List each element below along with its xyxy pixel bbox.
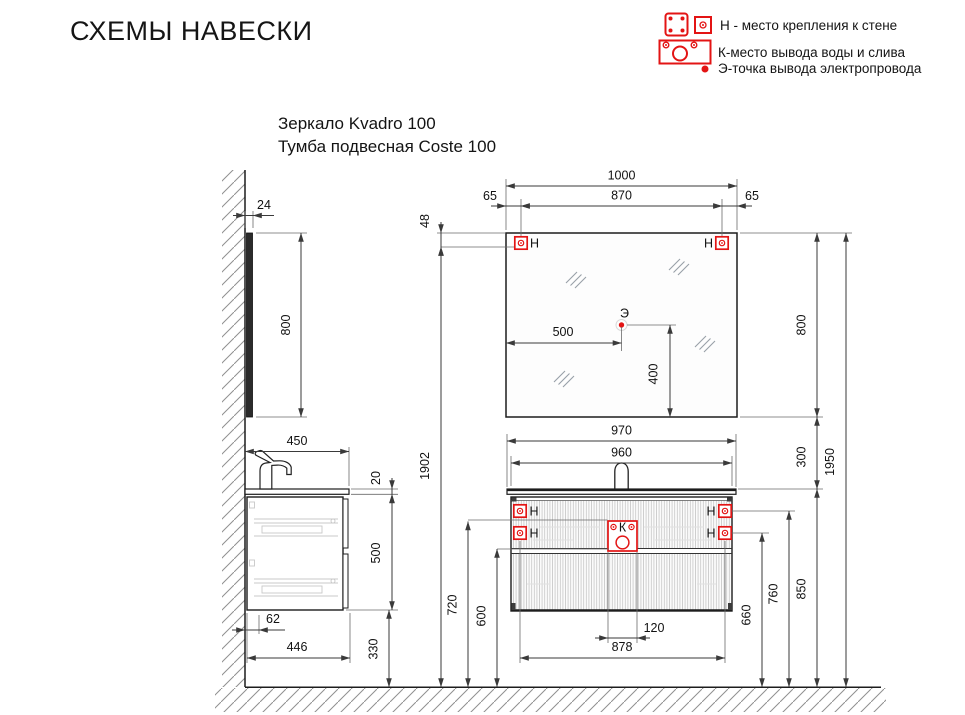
legend-item-wall-mount: Н - место крепления к стене [660,12,897,38]
central-dims: 48 1902 720 600 [418,214,497,687]
vanity-mount-left-high [514,505,526,517]
dim-floor-to-vanity-bottom: 330 [367,639,381,660]
dim-mirror-width: 1000 [608,169,636,183]
mirror-side-profile [247,233,253,417]
dim-vanity-top-width: 970 [611,424,632,438]
drawer-front-lower-side [343,554,348,608]
wall-mount-icon [660,12,714,38]
dim-countertop-thickness: 20 [369,471,383,485]
page-title: СХЕМЫ НАВЕСКИ [70,16,313,47]
vanity-mount-right-high [719,505,731,517]
dim-electric-from-left: 500 [553,325,574,339]
countertop-side [245,489,349,494]
drawer-lower-front [512,554,731,611]
vanity-mount-left-low [514,527,526,539]
dim-mirror-depth: 24 [257,198,271,212]
dim-floor-to-water: 720 [446,595,460,616]
dim-wall-gap: 62 [266,612,280,626]
wall-hatch [222,170,245,687]
dim-floor-to-drain: 600 [475,606,489,627]
dim-vanity-mount-span: 878 [612,640,633,654]
mounting-scheme-drawing: 24 800 450 20 500 [0,0,965,715]
faucet-front [615,463,628,489]
dim-floor-to-mirror-top: 1950 [823,448,837,476]
mount-label: Н [530,505,539,519]
floor-hatch [215,688,886,712]
dim-vanity-depth: 450 [287,434,308,448]
legend-label-water-drain: К-место вывода воды и слива [718,45,905,60]
dim-vanity-bottom-depth: 446 [287,640,308,654]
dim-mirror-mount-from-top: 48 [418,214,432,228]
faucet-side [255,451,291,489]
dim-floor-to-mount-low: 660 [740,605,754,626]
mount-label: Н [530,237,539,251]
dim-mirror-height: 800 [795,315,809,336]
dim-vanity-height: 500 [369,543,383,564]
right-dims: 660 760 800 300 850 1950 [738,233,852,687]
electric-point-icon [658,62,712,76]
product-vanity: Тумба подвесная Coste 100 [278,136,496,159]
mount-label: Н [706,505,715,519]
dim-vanity-body-width: 960 [611,446,632,460]
dim-mirror-mount-offset-right: 65 [745,189,759,203]
mirror-mount-left [515,237,527,249]
product-names: Зеркало Kvadro 100 Тумба подвесная Coste… [278,113,496,158]
electric-label: Э [620,307,629,321]
legend-item-electric: Э-точка вывода электропровода [658,61,921,76]
dim-mirror-mount-span: 870 [611,189,632,203]
drawer-front-upper-side [343,499,348,548]
mount-label: Н [530,527,539,541]
legend-label-electric: Э-точка вывода электропровода [718,61,921,76]
vanity-mount-right-low [719,527,731,539]
dim-floor-to-countertop: 850 [795,579,809,600]
dim-mirror-mount-offset-left: 65 [483,189,497,203]
dim-mirror-gap: 300 [795,447,809,468]
dim-floor-to-mount-high: 760 [767,584,781,605]
mount-label: Н [706,527,715,541]
dim-mirror-height-side: 800 [279,315,293,336]
mount-label: Н [704,237,713,251]
legend-label-wall-mount: Н - место крепления к стене [720,18,897,33]
water-drain-box: К [608,521,637,552]
mirror-front-view: 1000 870 65 65 Н Н Э 500 400 [483,169,759,418]
dim-electric-from-bottom: 400 [647,364,661,385]
dim-floor-to-mirror-mount: 1902 [418,452,432,480]
mirror-mount-right [716,237,728,249]
electric-point [619,322,624,327]
vanity-side-view: 450 20 500 62 446 330 [232,434,398,687]
dim-drain-offset: 120 [644,621,665,635]
product-mirror: Зеркало Kvadro 100 [278,113,496,136]
water-label: К [619,521,627,535]
